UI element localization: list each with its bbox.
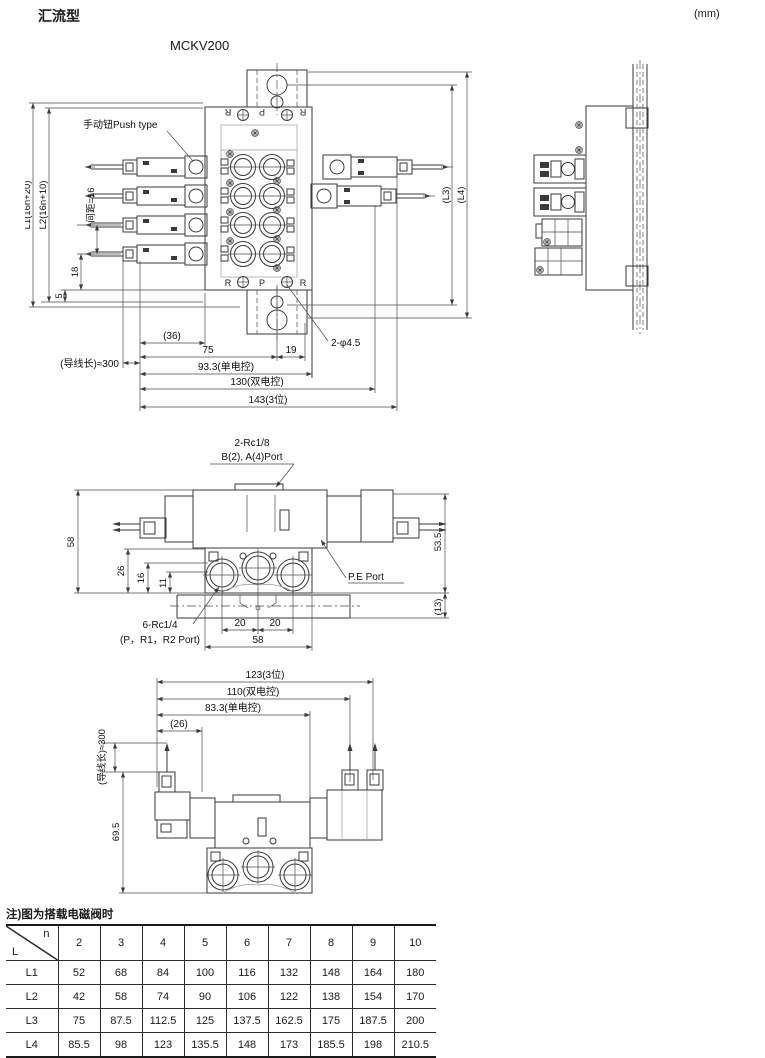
table-cell: 173 bbox=[268, 1033, 310, 1058]
table-cell: 98 bbox=[100, 1033, 142, 1058]
front-view-drawing: 58 26 16 11 53.5 (13) 20 20 58 2-Rc1/8 B… bbox=[30, 432, 475, 660]
table-cell: 135.5 bbox=[184, 1033, 226, 1058]
port-letters-bottom: R P R bbox=[225, 276, 307, 288]
table-row: L4 85.5 98 123 135.5 148 173 185.5 198 2… bbox=[6, 1033, 436, 1058]
table-cell: 180 bbox=[394, 961, 436, 985]
dim-16: 16 bbox=[136, 573, 147, 584]
table-cell: 75 bbox=[58, 1009, 100, 1033]
dim-143: 143(3位) bbox=[249, 393, 288, 406]
dim-123: 123(3位) bbox=[246, 668, 285, 681]
bottom-dims: 123(3位) 110(双电控) 83.3(单电控) (26) (导线长)≈30… bbox=[96, 668, 373, 893]
rc18-label: 2-Rc1/8 bbox=[234, 438, 269, 449]
page-title: 汇流型 bbox=[38, 6, 80, 26]
front-base-block bbox=[203, 548, 312, 594]
table-cell: 52 bbox=[58, 961, 100, 985]
model-label: MCKV200 bbox=[170, 38, 229, 53]
table-cell: 170 bbox=[394, 985, 436, 1009]
corner-label-l: L bbox=[12, 946, 18, 958]
dim-58-left: 58 bbox=[66, 537, 77, 548]
table-cell: 164 bbox=[352, 961, 394, 985]
table-cell: 198 bbox=[352, 1033, 394, 1058]
table-row: L1 52 68 84 100 116 132 148 164 180 bbox=[6, 961, 436, 985]
right-solenoid-station2 bbox=[311, 184, 435, 208]
valve-stations bbox=[85, 130, 294, 272]
dim-l1: L1(16n+20) bbox=[25, 181, 33, 230]
dim-130: 130(双电控) bbox=[230, 375, 283, 388]
table-col-header: 9 bbox=[352, 925, 394, 961]
port-r-bottom-left: R bbox=[225, 278, 232, 288]
table-cell: 122 bbox=[268, 985, 310, 1009]
front-valve-body bbox=[112, 484, 447, 548]
side-view-drawing bbox=[520, 58, 765, 336]
dim-53-5: 53.5 bbox=[433, 533, 444, 552]
table-cell: 148 bbox=[226, 1033, 268, 1058]
table-cell: 85.5 bbox=[58, 1033, 100, 1058]
table-cell: 187.5 bbox=[352, 1009, 394, 1033]
dim-lead-wire: (导线长)≈300 bbox=[60, 357, 119, 370]
table-cell: 116 bbox=[226, 961, 268, 985]
push-type-label: 手动钮Push type bbox=[83, 118, 158, 131]
hole-callout: 2-φ4.5 bbox=[331, 338, 361, 349]
table-cell: 58 bbox=[100, 985, 142, 1009]
top-view-drawing: R P R R P R bbox=[25, 55, 505, 423]
table-row: L3 75 87.5 112.5 125 137.5 162.5 175 187… bbox=[6, 1009, 436, 1033]
row-label: L1 bbox=[6, 961, 58, 985]
dim-l4: (L4) bbox=[456, 187, 467, 204]
row-label: L4 bbox=[6, 1033, 58, 1058]
dim-l3: (L3) bbox=[441, 187, 452, 204]
dim-69-5: 69.5 bbox=[111, 823, 122, 842]
table-cell: 137.5 bbox=[226, 1009, 268, 1033]
port-r-bottom-right: R bbox=[300, 278, 307, 288]
din-rail bbox=[626, 60, 648, 334]
dim-75: 75 bbox=[202, 345, 214, 356]
table-cell: 112.5 bbox=[142, 1009, 184, 1033]
table-cell: 68 bbox=[100, 961, 142, 985]
table-cell: 42 bbox=[58, 985, 100, 1009]
table-col-header: 10 bbox=[394, 925, 436, 961]
table-col-header: 6 bbox=[226, 925, 268, 961]
port-letters-top: R P R bbox=[224, 107, 306, 121]
dim-l2: L2(16n+10) bbox=[38, 181, 49, 230]
table-cell: 100 bbox=[184, 961, 226, 985]
front-dims: 58 26 16 11 53.5 (13) 20 20 58 bbox=[66, 490, 449, 651]
table-note: 注)图为搭载电磁阀时 bbox=[6, 906, 113, 922]
top-view-leaders: 手动钮Push type 2-φ4.5 bbox=[83, 118, 361, 349]
rc14-ports-label: (P，R1，R2 Port) bbox=[120, 635, 200, 646]
pe-port-label: P.E Port bbox=[348, 572, 384, 583]
table-cell: 162.5 bbox=[268, 1009, 310, 1033]
dim-19: 19 bbox=[285, 345, 297, 356]
table-col-header: 2 bbox=[58, 925, 100, 961]
table-cell: 74 bbox=[142, 985, 184, 1009]
bottom-valve-assembly bbox=[155, 743, 383, 848]
unit-label: (mm) bbox=[694, 8, 720, 20]
bottom-base-block bbox=[206, 848, 312, 893]
row-label: L3 bbox=[6, 1009, 58, 1033]
table-col-header: 7 bbox=[268, 925, 310, 961]
side-body bbox=[534, 106, 633, 290]
front-rail bbox=[170, 595, 360, 618]
table-row: L2 42 58 74 90 106 122 138 154 170 bbox=[6, 985, 436, 1009]
dim-18: 18 bbox=[70, 267, 81, 278]
dim-83: 83.3(单电控) bbox=[205, 701, 261, 714]
port-p-bottom: P bbox=[259, 278, 265, 288]
table-corner-cell: n L bbox=[6, 925, 58, 961]
table-cell: 175 bbox=[310, 1009, 352, 1033]
rc14-label: 6-Rc1/4 bbox=[142, 620, 177, 631]
top-view-right-dims: (L3) (L4) bbox=[287, 72, 472, 318]
table-cell: 123 bbox=[142, 1033, 184, 1058]
table-cell: 200 bbox=[394, 1009, 436, 1033]
table-cell: 154 bbox=[352, 985, 394, 1009]
rc18-ports-label: B(2), A(4)Port bbox=[221, 452, 282, 463]
table-cell: 185.5 bbox=[310, 1033, 352, 1058]
dim-93: 93.3(单电控) bbox=[198, 360, 254, 373]
catalog-page: 汇流型 (mm) MCKV200 bbox=[0, 0, 765, 1058]
dim-36: (36) bbox=[163, 331, 181, 342]
table-cell: 106 bbox=[226, 985, 268, 1009]
table-cell: 210.5 bbox=[394, 1033, 436, 1058]
dim-20b: 20 bbox=[269, 618, 281, 629]
table-col-header: 8 bbox=[310, 925, 352, 961]
dim-lead-wire-b: (导线长)≈300 bbox=[96, 729, 108, 785]
port-r-top-left: R bbox=[224, 107, 231, 117]
table-cell: 87.5 bbox=[100, 1009, 142, 1033]
table-col-header: 3 bbox=[100, 925, 142, 961]
corner-label-n: n bbox=[43, 928, 49, 940]
dim-110: 110(双电控) bbox=[227, 685, 280, 698]
port-r-top-right: R bbox=[299, 107, 306, 117]
dim-26: 26 bbox=[116, 566, 127, 577]
table-cell: 84 bbox=[142, 961, 184, 985]
dim-13: (13) bbox=[433, 599, 444, 616]
dim-20a: 20 bbox=[234, 618, 246, 629]
dim-pitch: 间距=16 bbox=[85, 187, 97, 222]
table-cell: 138 bbox=[310, 985, 352, 1009]
table-col-header: 4 bbox=[142, 925, 184, 961]
row-label: L2 bbox=[6, 985, 58, 1009]
top-view-left-dims: L1(16n+20) L2(16n+10) 间距=16 18 5 bbox=[25, 103, 240, 307]
dim-58-bottom: 58 bbox=[252, 635, 264, 646]
right-solenoid-station1 bbox=[323, 155, 453, 179]
dimension-table: n L 2 3 4 5 6 7 8 9 10 L1 52 68 84 100 1… bbox=[6, 924, 436, 1058]
bottom-view-drawing: 123(3位) 110(双电控) 83.3(单电控) (26) (导线长)≈30… bbox=[95, 660, 455, 908]
table-col-header: 5 bbox=[184, 925, 226, 961]
port-p-top: P bbox=[259, 107, 265, 117]
table-header-row: n L 2 3 4 5 6 7 8 9 10 bbox=[6, 925, 436, 961]
table-cell: 132 bbox=[268, 961, 310, 985]
dim-11: 11 bbox=[158, 578, 169, 588]
table-cell: 125 bbox=[184, 1009, 226, 1033]
dim-5: 5 bbox=[54, 293, 65, 298]
dim-26b: (26) bbox=[170, 719, 188, 730]
table-cell: 90 bbox=[184, 985, 226, 1009]
table-cell: 148 bbox=[310, 961, 352, 985]
